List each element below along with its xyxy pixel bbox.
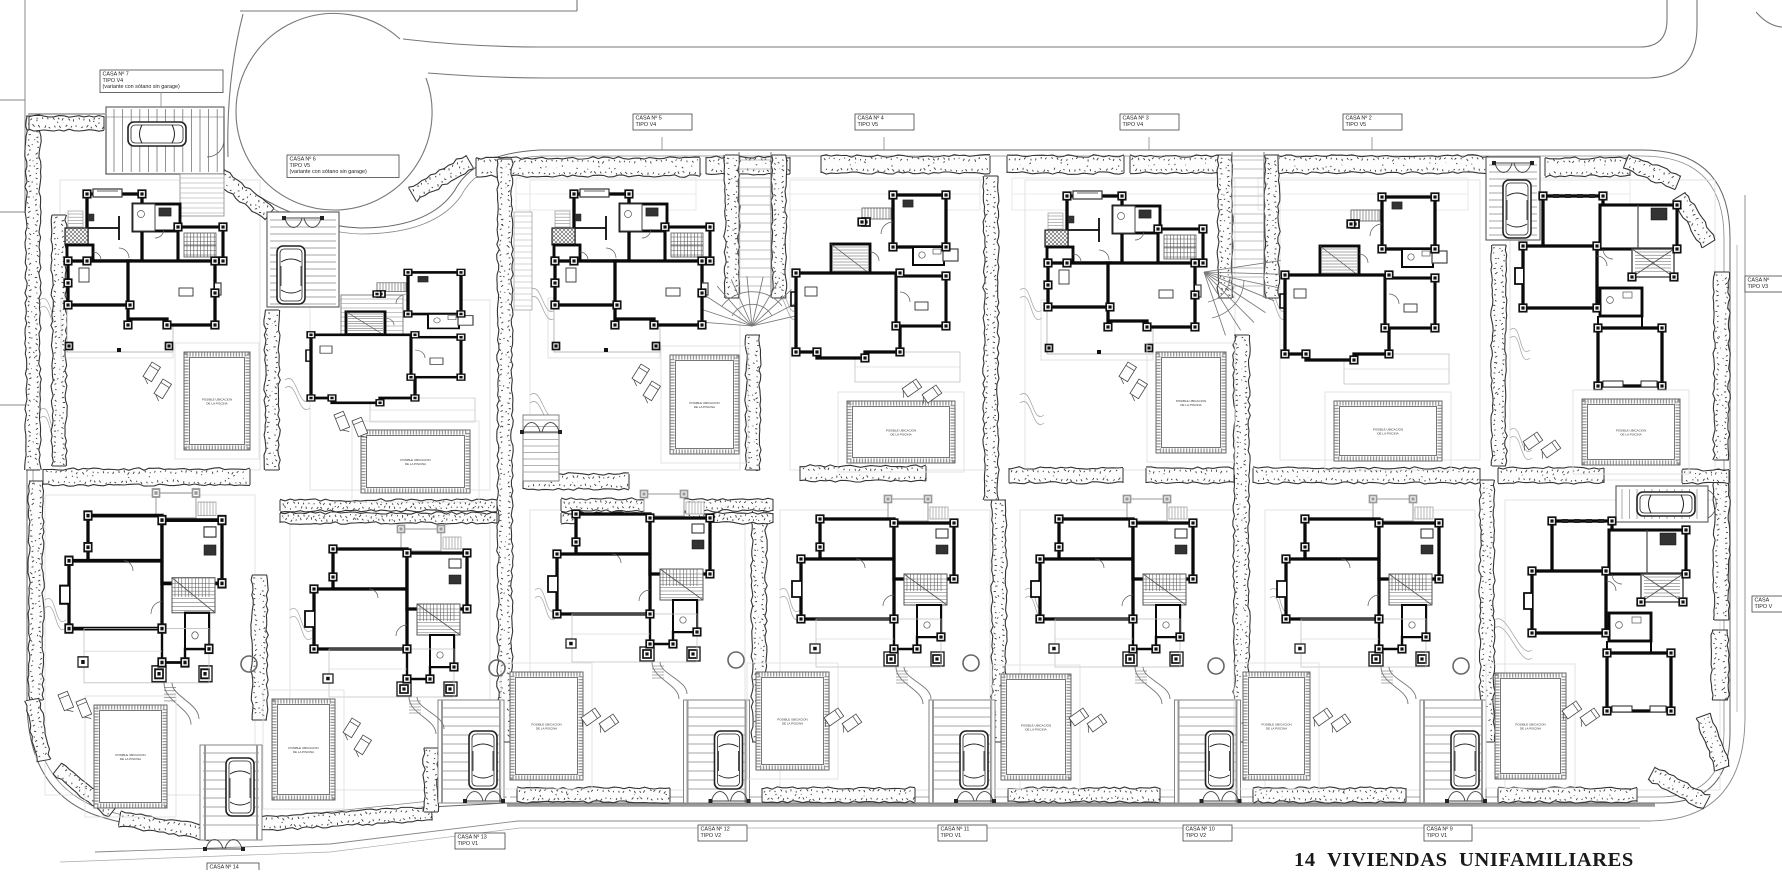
svg-text:TIPO V1: TIPO V1 xyxy=(941,833,962,839)
svg-text:DE LA PISCINA: DE LA PISCINA xyxy=(694,405,715,409)
svg-text:DE LA PISCINA: DE LA PISCINA xyxy=(206,402,227,406)
svg-text:CASA Nº 5: CASA Nº 5 xyxy=(636,116,662,122)
svg-text:DE LA PISCINA: DE LA PISCINA xyxy=(120,757,141,761)
svg-text:DE LA PISCINA: DE LA PISCINA xyxy=(1620,433,1641,437)
svg-text:TIPO V3: TIPO V3 xyxy=(1748,284,1769,290)
svg-text:TIPO V: TIPO V xyxy=(1755,604,1773,610)
svg-text:DE LA PISCINA: DE LA PISCINA xyxy=(782,722,803,726)
svg-text:CASA Nº 3: CASA Nº 3 xyxy=(1123,116,1149,122)
svg-text:DE LA PISCINA: DE LA PISCINA xyxy=(1520,727,1541,731)
svg-text:TIPO V2: TIPO V2 xyxy=(701,833,722,839)
svg-text:TIPO V4: TIPO V4 xyxy=(636,122,657,128)
svg-text:DE LA PISCINA: DE LA PISCINA xyxy=(890,433,911,437)
svg-text:CASA Nº 14: CASA Nº 14 xyxy=(210,865,239,871)
svg-text:CASA Nº 11: CASA Nº 11 xyxy=(941,827,970,833)
svg-text:CASA Nº 7: CASA Nº 7 xyxy=(103,72,129,78)
svg-text:TIPO V4: TIPO V4 xyxy=(103,78,124,84)
svg-text:CASA Nº 10: CASA Nº 10 xyxy=(1186,827,1215,833)
svg-text:CASA Nº 13: CASA Nº 13 xyxy=(458,835,487,841)
svg-text:TIPO V4: TIPO V4 xyxy=(1123,122,1144,128)
svg-text:DE LA PISCINA: DE LA PISCINA xyxy=(405,462,426,466)
svg-text:DE LA PISCINA: DE LA PISCINA xyxy=(1266,727,1287,731)
svg-text:CASA Nº 6: CASA Nº 6 xyxy=(290,157,316,163)
svg-text:TIPO V5: TIPO V5 xyxy=(290,163,311,169)
svg-text:DE LA PISCINA: DE LA PISCINA xyxy=(1377,432,1398,436)
svg-text:DE LA PISCINA: DE LA PISCINA xyxy=(1025,728,1046,732)
svg-text:CASA Nº 12: CASA Nº 12 xyxy=(701,827,730,833)
svg-text:14 VIVIENDAS UNIFAMILIARES: 14 VIVIENDAS UNIFAMILIARES xyxy=(1294,849,1634,870)
svg-text:CASA Nº 2: CASA Nº 2 xyxy=(1346,116,1372,122)
svg-text:CASA: CASA xyxy=(1755,598,1770,604)
svg-text:CASA Nº 9: CASA Nº 9 xyxy=(1427,827,1453,833)
svg-text:CASA Nº: CASA Nº xyxy=(1748,278,1770,284)
svg-text:CASA Nº 4: CASA Nº 4 xyxy=(858,116,884,122)
svg-text:TIPO V5: TIPO V5 xyxy=(1346,122,1367,128)
svg-text:(variante con sótano sin garag: (variante con sótano sin garage) xyxy=(103,84,181,90)
svg-text:DE LA PISCINA: DE LA PISCINA xyxy=(1180,403,1201,407)
svg-text:DE LA PISCINA: DE LA PISCINA xyxy=(293,750,314,754)
svg-text:TIPO V5: TIPO V5 xyxy=(858,122,879,128)
svg-text:TIPO V1: TIPO V1 xyxy=(1427,833,1448,839)
svg-text:DE LA PISCINA: DE LA PISCINA xyxy=(536,727,557,731)
svg-text:(variante con sótano sin garag: (variante con sótano sin garage) xyxy=(290,169,368,175)
svg-text:TIPO V1: TIPO V1 xyxy=(458,841,479,847)
svg-text:TIPO V2: TIPO V2 xyxy=(1186,833,1207,839)
